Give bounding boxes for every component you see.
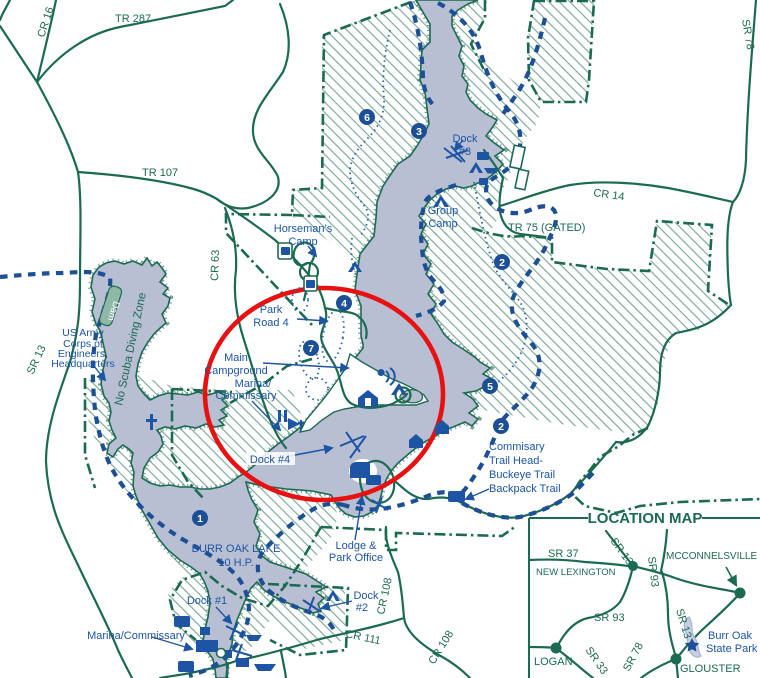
svg-text:Camp: Camp xyxy=(288,236,317,248)
svg-text:Buckeye Trail: Buckeye Trail xyxy=(489,469,555,481)
svg-text:MCCONNELSVILLE: MCCONNELSVILLE xyxy=(666,551,757,562)
svg-text:Marina/Commissary: Marina/Commissary xyxy=(87,630,185,642)
svg-text:Dock #4: Dock #4 xyxy=(250,454,290,466)
svg-text:NEW LEXINGTON: NEW LEXINGTON xyxy=(536,567,616,578)
svg-text:SR 37: SR 37 xyxy=(548,548,579,560)
svg-text:10 H.P.: 10 H.P. xyxy=(218,557,253,569)
svg-text:GLOUSTER: GLOUSTER xyxy=(680,663,741,675)
svg-text:LOGAN: LOGAN xyxy=(534,656,573,668)
svg-text:TR 107: TR 107 xyxy=(142,167,178,179)
svg-text:Burr Oak: Burr Oak xyxy=(708,630,753,642)
svg-text:Campground: Campground xyxy=(204,365,268,377)
svg-text:Commisary: Commisary xyxy=(489,441,545,453)
svg-text:Main: Main xyxy=(224,352,248,364)
svg-text:7: 7 xyxy=(308,343,314,355)
svg-text:Dock: Dock xyxy=(353,590,379,602)
svg-text:2: 2 xyxy=(499,257,505,269)
svg-text:SR 93: SR 93 xyxy=(594,612,625,624)
svg-text:#2: #2 xyxy=(356,602,368,614)
svg-text:Group: Group xyxy=(428,205,459,217)
svg-text:Headquarters: Headquarters xyxy=(51,358,115,370)
svg-text:Trail Head-: Trail Head- xyxy=(489,455,543,467)
svg-text:5: 5 xyxy=(487,381,493,393)
svg-text:BURR OAK LAKE: BURR OAK LAKE xyxy=(192,543,281,555)
svg-text:Horseman’s: Horseman’s xyxy=(274,223,333,235)
svg-text:Park Office: Park Office xyxy=(329,552,383,564)
svg-text:3: 3 xyxy=(416,126,422,138)
svg-text:Camp: Camp xyxy=(428,218,457,230)
svg-text:#3: #3 xyxy=(459,146,471,158)
svg-text:State Park: State Park xyxy=(706,643,758,655)
svg-text:CR 63: CR 63 xyxy=(209,250,222,282)
svg-text:Lodge &: Lodge & xyxy=(336,540,378,552)
svg-text:Dock #1: Dock #1 xyxy=(187,595,227,607)
svg-text:1: 1 xyxy=(197,513,203,525)
svg-text:6: 6 xyxy=(364,112,370,124)
svg-text:TR 75 (GATED): TR 75 (GATED) xyxy=(508,222,585,234)
svg-text:Dock: Dock xyxy=(452,133,478,145)
svg-text:Marina/: Marina/ xyxy=(235,378,273,390)
svg-text:2: 2 xyxy=(498,421,504,433)
svg-text:4: 4 xyxy=(341,298,347,310)
svg-text:Road 4: Road 4 xyxy=(253,317,288,329)
svg-text:Commissary: Commissary xyxy=(215,390,277,402)
svg-text:Park: Park xyxy=(260,304,283,316)
svg-text:LOCATION MAP: LOCATION MAP xyxy=(588,510,703,527)
svg-text:Backpack Trail: Backpack Trail xyxy=(489,483,561,495)
svg-text:TR 287: TR 287 xyxy=(115,13,151,25)
